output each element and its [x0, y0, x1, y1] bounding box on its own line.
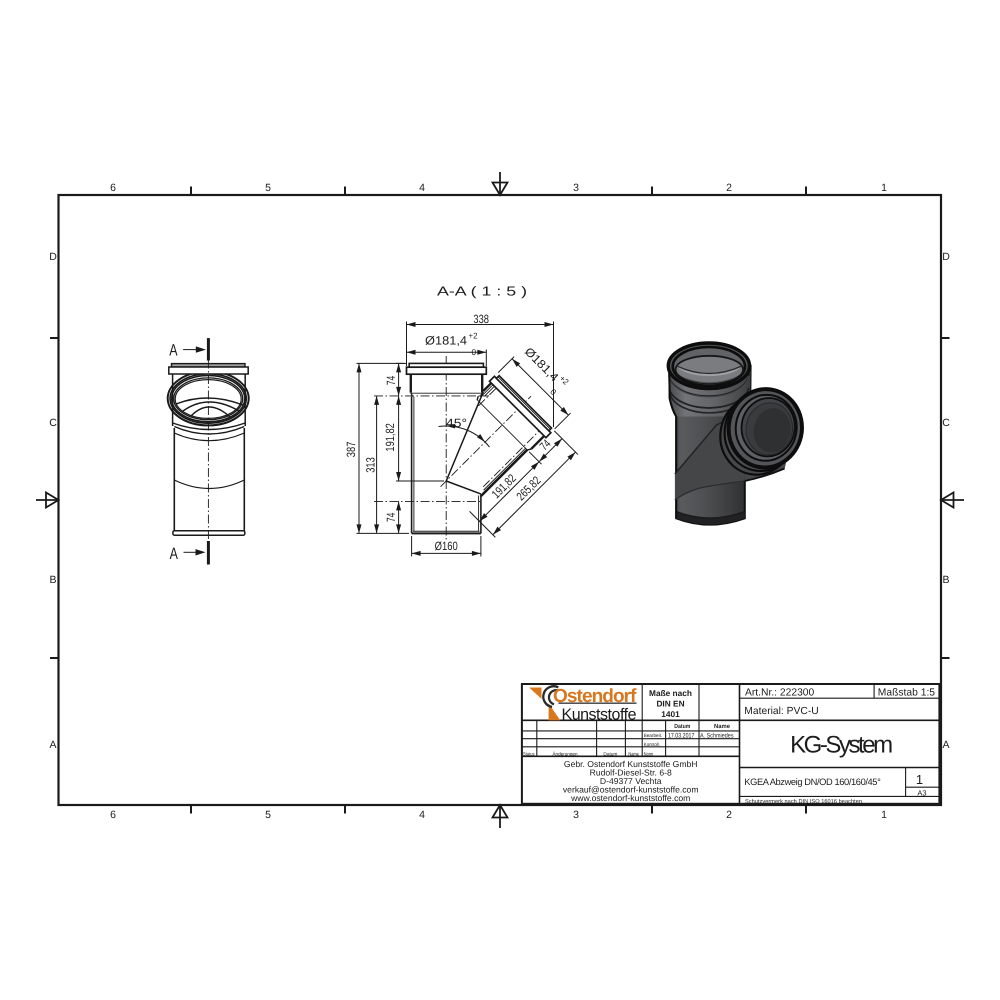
svg-text:74: 74 — [384, 512, 398, 522]
svg-text:D: D — [942, 251, 950, 263]
svg-text:A-A ( 1 : 5 ): A-A ( 1 : 5 ) — [437, 284, 527, 299]
svg-text:B: B — [942, 574, 949, 586]
svg-text:191,82: 191,82 — [383, 423, 397, 452]
svg-text:KG-System: KG-System — [790, 732, 893, 759]
svg-text:D: D — [49, 251, 57, 263]
svg-text:Art.Nr.: 222300: Art.Nr.: 222300 — [745, 687, 815, 698]
svg-text:5: 5 — [265, 182, 271, 194]
svg-text:45°: 45° — [446, 416, 467, 430]
svg-text:+2: +2 — [469, 331, 478, 341]
svg-text:Kunststoffe: Kunststoffe — [562, 706, 637, 723]
svg-text:2: 2 — [726, 809, 732, 821]
svg-text:Status: Status — [523, 751, 535, 757]
svg-text:Material: PVC-U: Material: PVC-U — [744, 706, 818, 717]
svg-text:2: 2 — [726, 182, 732, 194]
svg-text:Datum: Datum — [674, 723, 690, 730]
svg-text:KGEA Abzweig DN/OD 160/160/45°: KGEA Abzweig DN/OD 160/160/45° — [744, 777, 881, 787]
svg-text:6: 6 — [110, 809, 116, 821]
svg-text:C: C — [49, 417, 57, 429]
svg-text:1: 1 — [881, 182, 887, 194]
svg-text:Datum: Datum — [603, 751, 617, 757]
svg-text:C: C — [942, 417, 950, 429]
svg-text:A: A — [942, 739, 949, 751]
svg-text:A: A — [169, 342, 177, 360]
svg-text:Maßstab 1:5: Maßstab 1:5 — [878, 687, 936, 698]
svg-text:Ø160: Ø160 — [435, 539, 458, 553]
svg-text:A. Schmiedes: A. Schmiedes — [700, 732, 734, 739]
svg-text:4: 4 — [419, 809, 425, 821]
svg-text:338: 338 — [473, 312, 489, 326]
svg-text:Kontroll.: Kontroll. — [644, 742, 660, 748]
svg-text:17.03.2017: 17.03.2017 — [668, 732, 695, 739]
svg-text:B: B — [49, 574, 56, 586]
svg-text:5: 5 — [265, 809, 271, 821]
svg-text:Bearbeit.: Bearbeit. — [644, 733, 662, 739]
svg-text:Norm: Norm — [644, 751, 654, 757]
svg-text:3: 3 — [573, 809, 579, 821]
svg-text:A: A — [170, 545, 178, 563]
svg-text:6: 6 — [110, 182, 116, 194]
svg-text:1: 1 — [881, 809, 887, 821]
svg-text:Maße nach: Maße nach — [649, 688, 692, 698]
svg-text:Schutzvermerk nach DIN ISO 160: Schutzvermerk nach DIN ISO 16016 beachte… — [745, 798, 862, 805]
svg-text:4: 4 — [419, 182, 425, 194]
svg-text:3: 3 — [573, 182, 579, 194]
svg-text:1: 1 — [916, 772, 923, 787]
svg-text:313: 313 — [363, 457, 377, 473]
svg-text:Name: Name — [628, 751, 639, 757]
svg-text:74: 74 — [384, 376, 398, 386]
svg-text:0: 0 — [472, 347, 477, 357]
svg-text:387: 387 — [344, 441, 358, 457]
svg-text:www.ostendorf-kunststoffe.com: www.ostendorf-kunststoffe.com — [570, 793, 690, 803]
svg-text:Änderungen: Änderungen — [553, 750, 578, 757]
svg-text:A3: A3 — [917, 788, 926, 797]
svg-text:1401: 1401 — [661, 709, 680, 719]
svg-text:DIN EN: DIN EN — [656, 699, 684, 709]
svg-text:Ø181,4: Ø181,4 — [425, 334, 467, 348]
svg-text:A: A — [49, 739, 56, 751]
svg-text:Name: Name — [714, 723, 731, 730]
